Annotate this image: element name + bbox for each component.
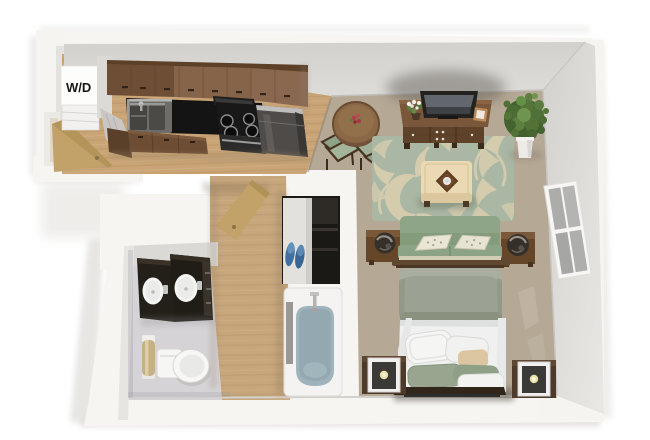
svg-text:W/D: W/D: [66, 80, 91, 95]
